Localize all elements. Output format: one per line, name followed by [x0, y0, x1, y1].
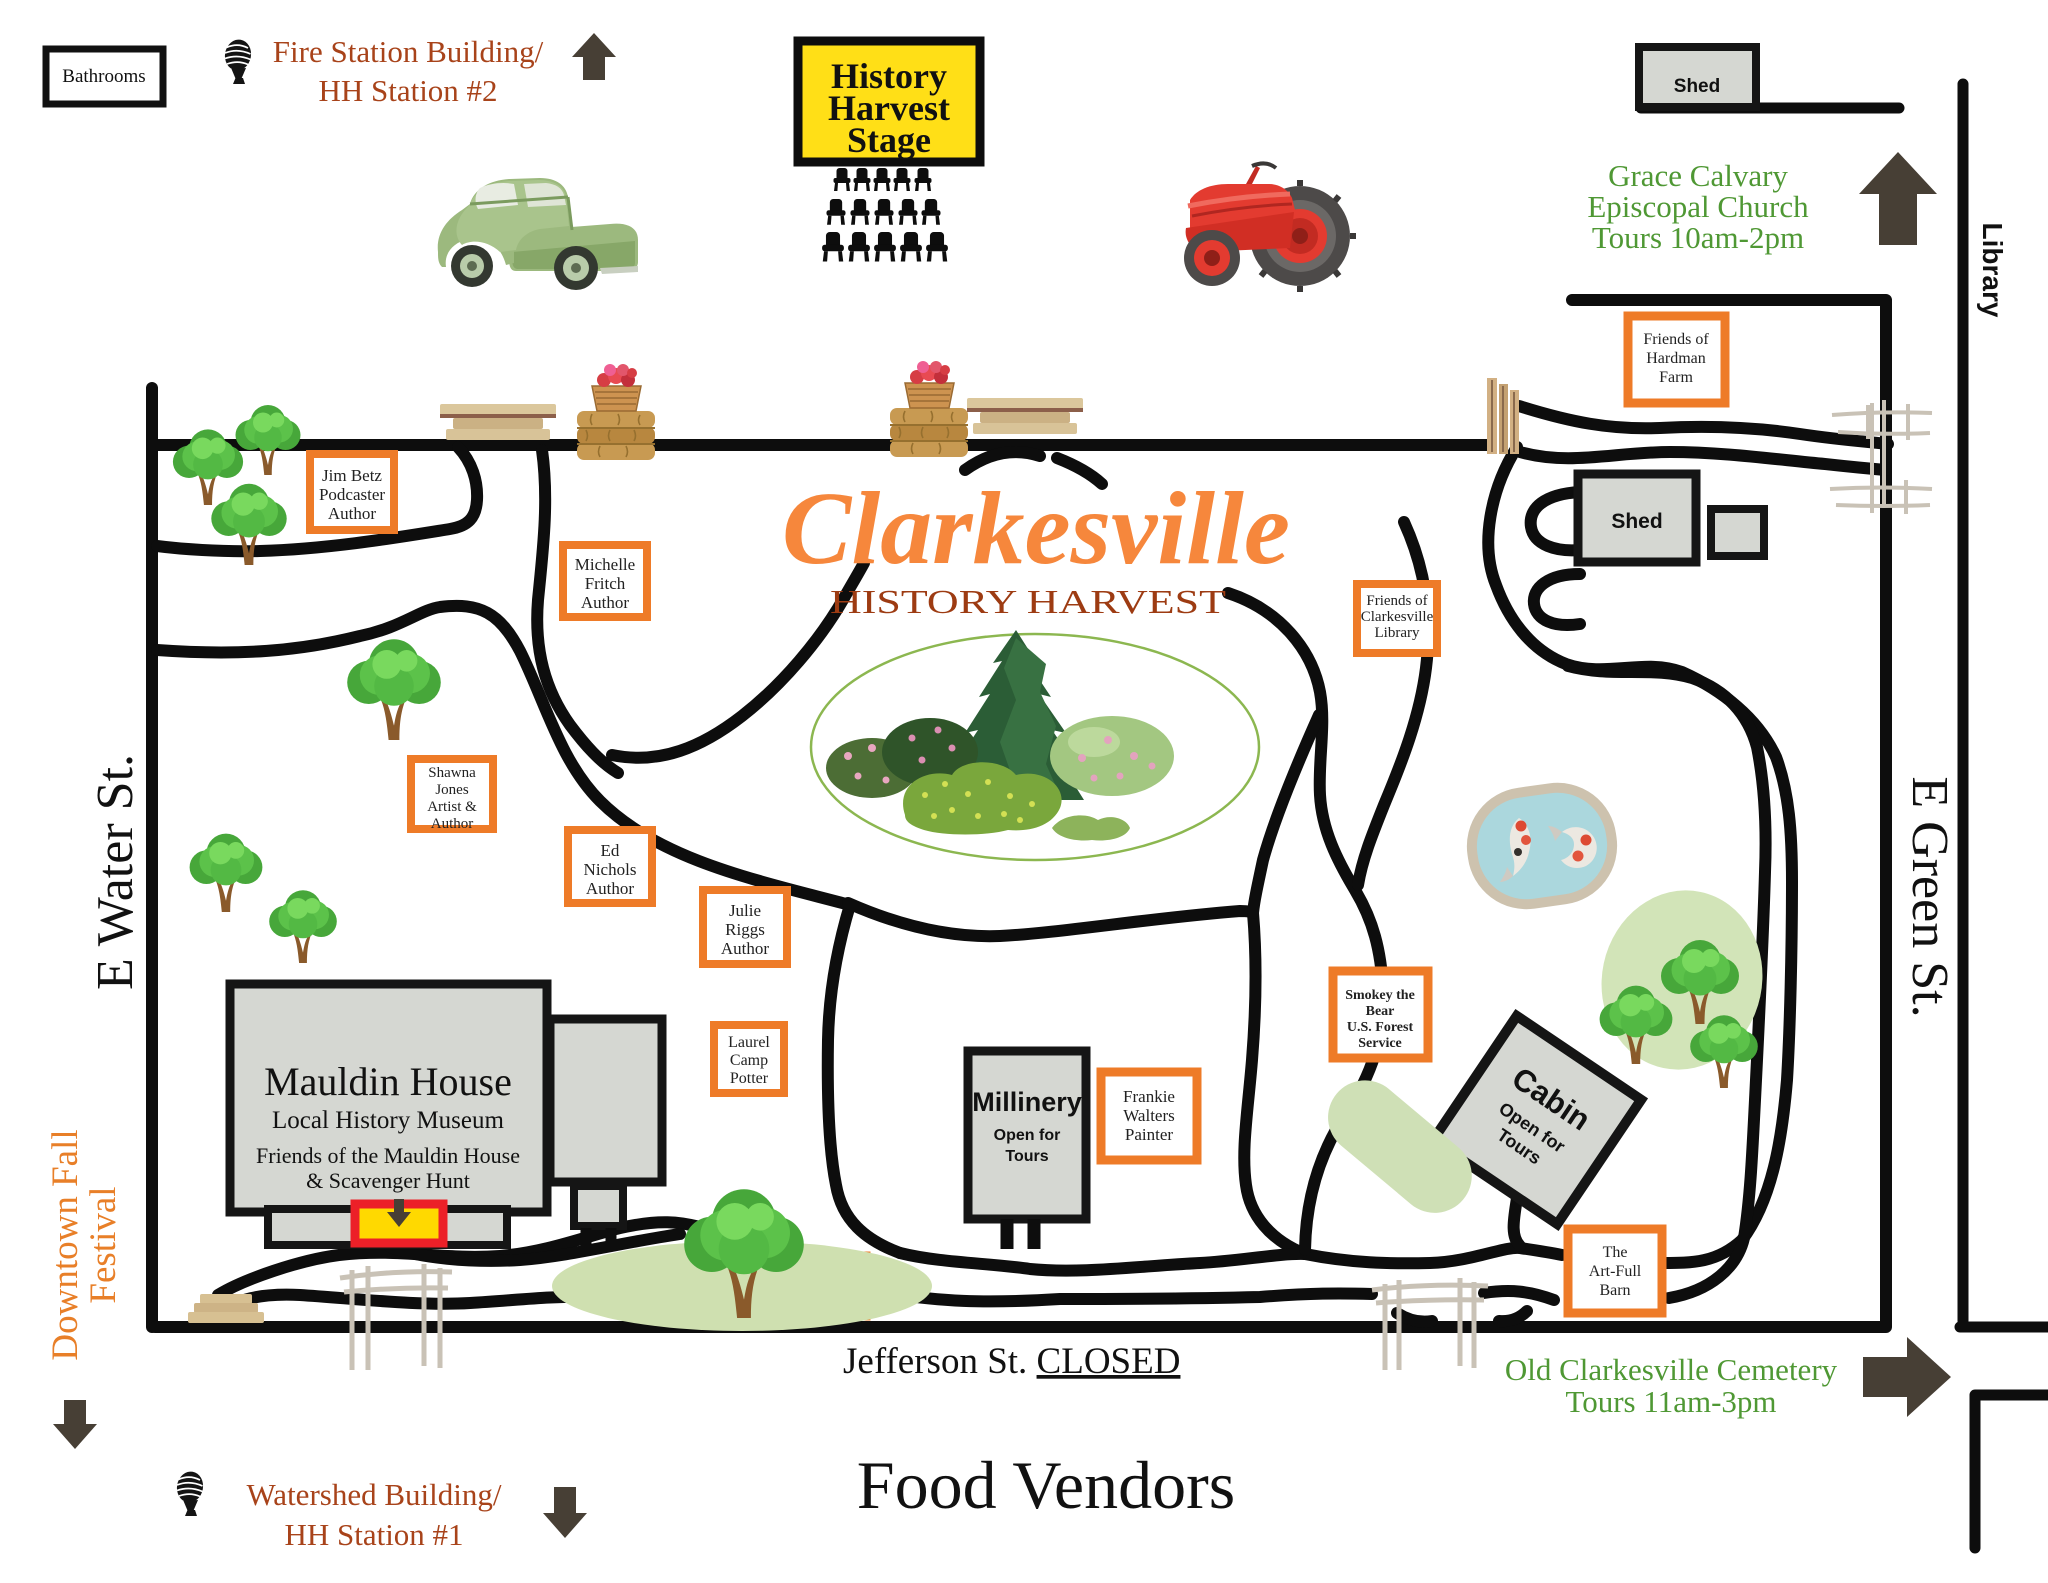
- svg-text:U.S. Forest: U.S. Forest: [1347, 1020, 1414, 1035]
- svg-text:Camp: Camp: [730, 1052, 768, 1069]
- svg-text:Podcaster: Podcaster: [319, 485, 385, 504]
- svg-text:Art-Full: Art-Full: [1589, 1263, 1642, 1280]
- svg-text:Friends of the Mauldin House: Friends of the Mauldin House: [256, 1143, 520, 1168]
- svg-text:Laurel: Laurel: [728, 1034, 770, 1051]
- svg-text:Jones: Jones: [435, 782, 468, 798]
- svg-text:Author: Author: [586, 879, 635, 898]
- svg-text:Bear: Bear: [1366, 1004, 1395, 1019]
- svg-text:Shed: Shed: [1611, 510, 1662, 533]
- svg-text:Shed: Shed: [1674, 76, 1720, 97]
- svg-text:Ed: Ed: [601, 841, 620, 860]
- svg-text:Walters: Walters: [1123, 1106, 1175, 1125]
- svg-text:Millinery: Millinery: [972, 1087, 1082, 1117]
- svg-text:Friends of: Friends of: [1643, 331, 1709, 348]
- svg-text:Fritch: Fritch: [585, 574, 626, 593]
- svg-text:Library: Library: [1977, 223, 2008, 318]
- svg-text:Author: Author: [721, 939, 770, 958]
- svg-text:Tours: Tours: [1005, 1148, 1048, 1165]
- svg-text:Food Vendors: Food Vendors: [857, 1447, 1235, 1523]
- svg-text:Downtown Fall: Downtown Fall: [45, 1129, 86, 1360]
- svg-text:Old Clarkesville Cemetery: Old Clarkesville Cemetery: [1505, 1352, 1838, 1387]
- svg-text:Author: Author: [431, 816, 474, 832]
- svg-text:E Water St.: E Water St.: [87, 754, 144, 990]
- svg-text:Artist &: Artist &: [427, 799, 477, 815]
- svg-text:Bathrooms: Bathrooms: [62, 66, 145, 87]
- svg-text:Julie: Julie: [729, 901, 761, 920]
- svg-text:& Scavenger Hunt: & Scavenger Hunt: [306, 1168, 470, 1193]
- svg-text:Frankie: Frankie: [1123, 1087, 1175, 1106]
- svg-text:Potter: Potter: [730, 1070, 769, 1087]
- svg-text:Shawna: Shawna: [428, 765, 476, 781]
- svg-text:Smokey the: Smokey the: [1345, 988, 1415, 1003]
- svg-text:Author: Author: [581, 593, 630, 612]
- svg-text:Stage: Stage: [847, 120, 931, 160]
- svg-text:Episcopal Church: Episcopal Church: [1587, 189, 1809, 224]
- svg-text:Clarkesville: Clarkesville: [782, 471, 1290, 586]
- svg-text:Fire Station Building/: Fire Station Building/: [273, 34, 544, 69]
- svg-text:Mauldin House: Mauldin House: [264, 1059, 512, 1104]
- svg-text:Local History Museum: Local History Museum: [272, 1107, 504, 1134]
- svg-text:Jefferson St. CLOSED: Jefferson St. CLOSED: [843, 1341, 1180, 1382]
- svg-text:Barn: Barn: [1599, 1282, 1630, 1299]
- svg-text:Open for: Open for: [994, 1127, 1061, 1144]
- svg-text:Service: Service: [1358, 1036, 1402, 1051]
- svg-text:Tours 11am-3pm: Tours 11am-3pm: [1565, 1384, 1776, 1419]
- svg-text:HH Station #2: HH Station #2: [318, 73, 497, 108]
- svg-text:Tours 10am-2pm: Tours 10am-2pm: [1592, 220, 1804, 255]
- svg-text:HISTORY HARVEST: HISTORY HARVEST: [830, 584, 1226, 621]
- svg-text:Michelle: Michelle: [575, 555, 635, 574]
- svg-text:Festival: Festival: [83, 1186, 124, 1303]
- svg-text:Farm: Farm: [1659, 369, 1693, 386]
- svg-text:Grace Calvary: Grace Calvary: [1608, 158, 1788, 193]
- svg-text:HH Station #1: HH Station #1: [284, 1517, 463, 1552]
- svg-text:Watershed Building/: Watershed Building/: [247, 1477, 502, 1512]
- svg-text:Nichols: Nichols: [584, 860, 637, 879]
- svg-text:Painter: Painter: [1125, 1125, 1173, 1144]
- svg-text:Hardman: Hardman: [1646, 350, 1706, 367]
- svg-text:The: The: [1603, 1244, 1628, 1261]
- svg-text:Author: Author: [328, 504, 377, 523]
- svg-text:Riggs: Riggs: [725, 920, 765, 939]
- svg-text:Library: Library: [1375, 625, 1420, 641]
- svg-text:Friends of: Friends of: [1366, 593, 1427, 609]
- svg-text:Jim Betz: Jim Betz: [322, 466, 382, 485]
- svg-text:E Green St.: E Green St.: [1901, 776, 1958, 1017]
- svg-text:Clarkesville: Clarkesville: [1361, 609, 1434, 625]
